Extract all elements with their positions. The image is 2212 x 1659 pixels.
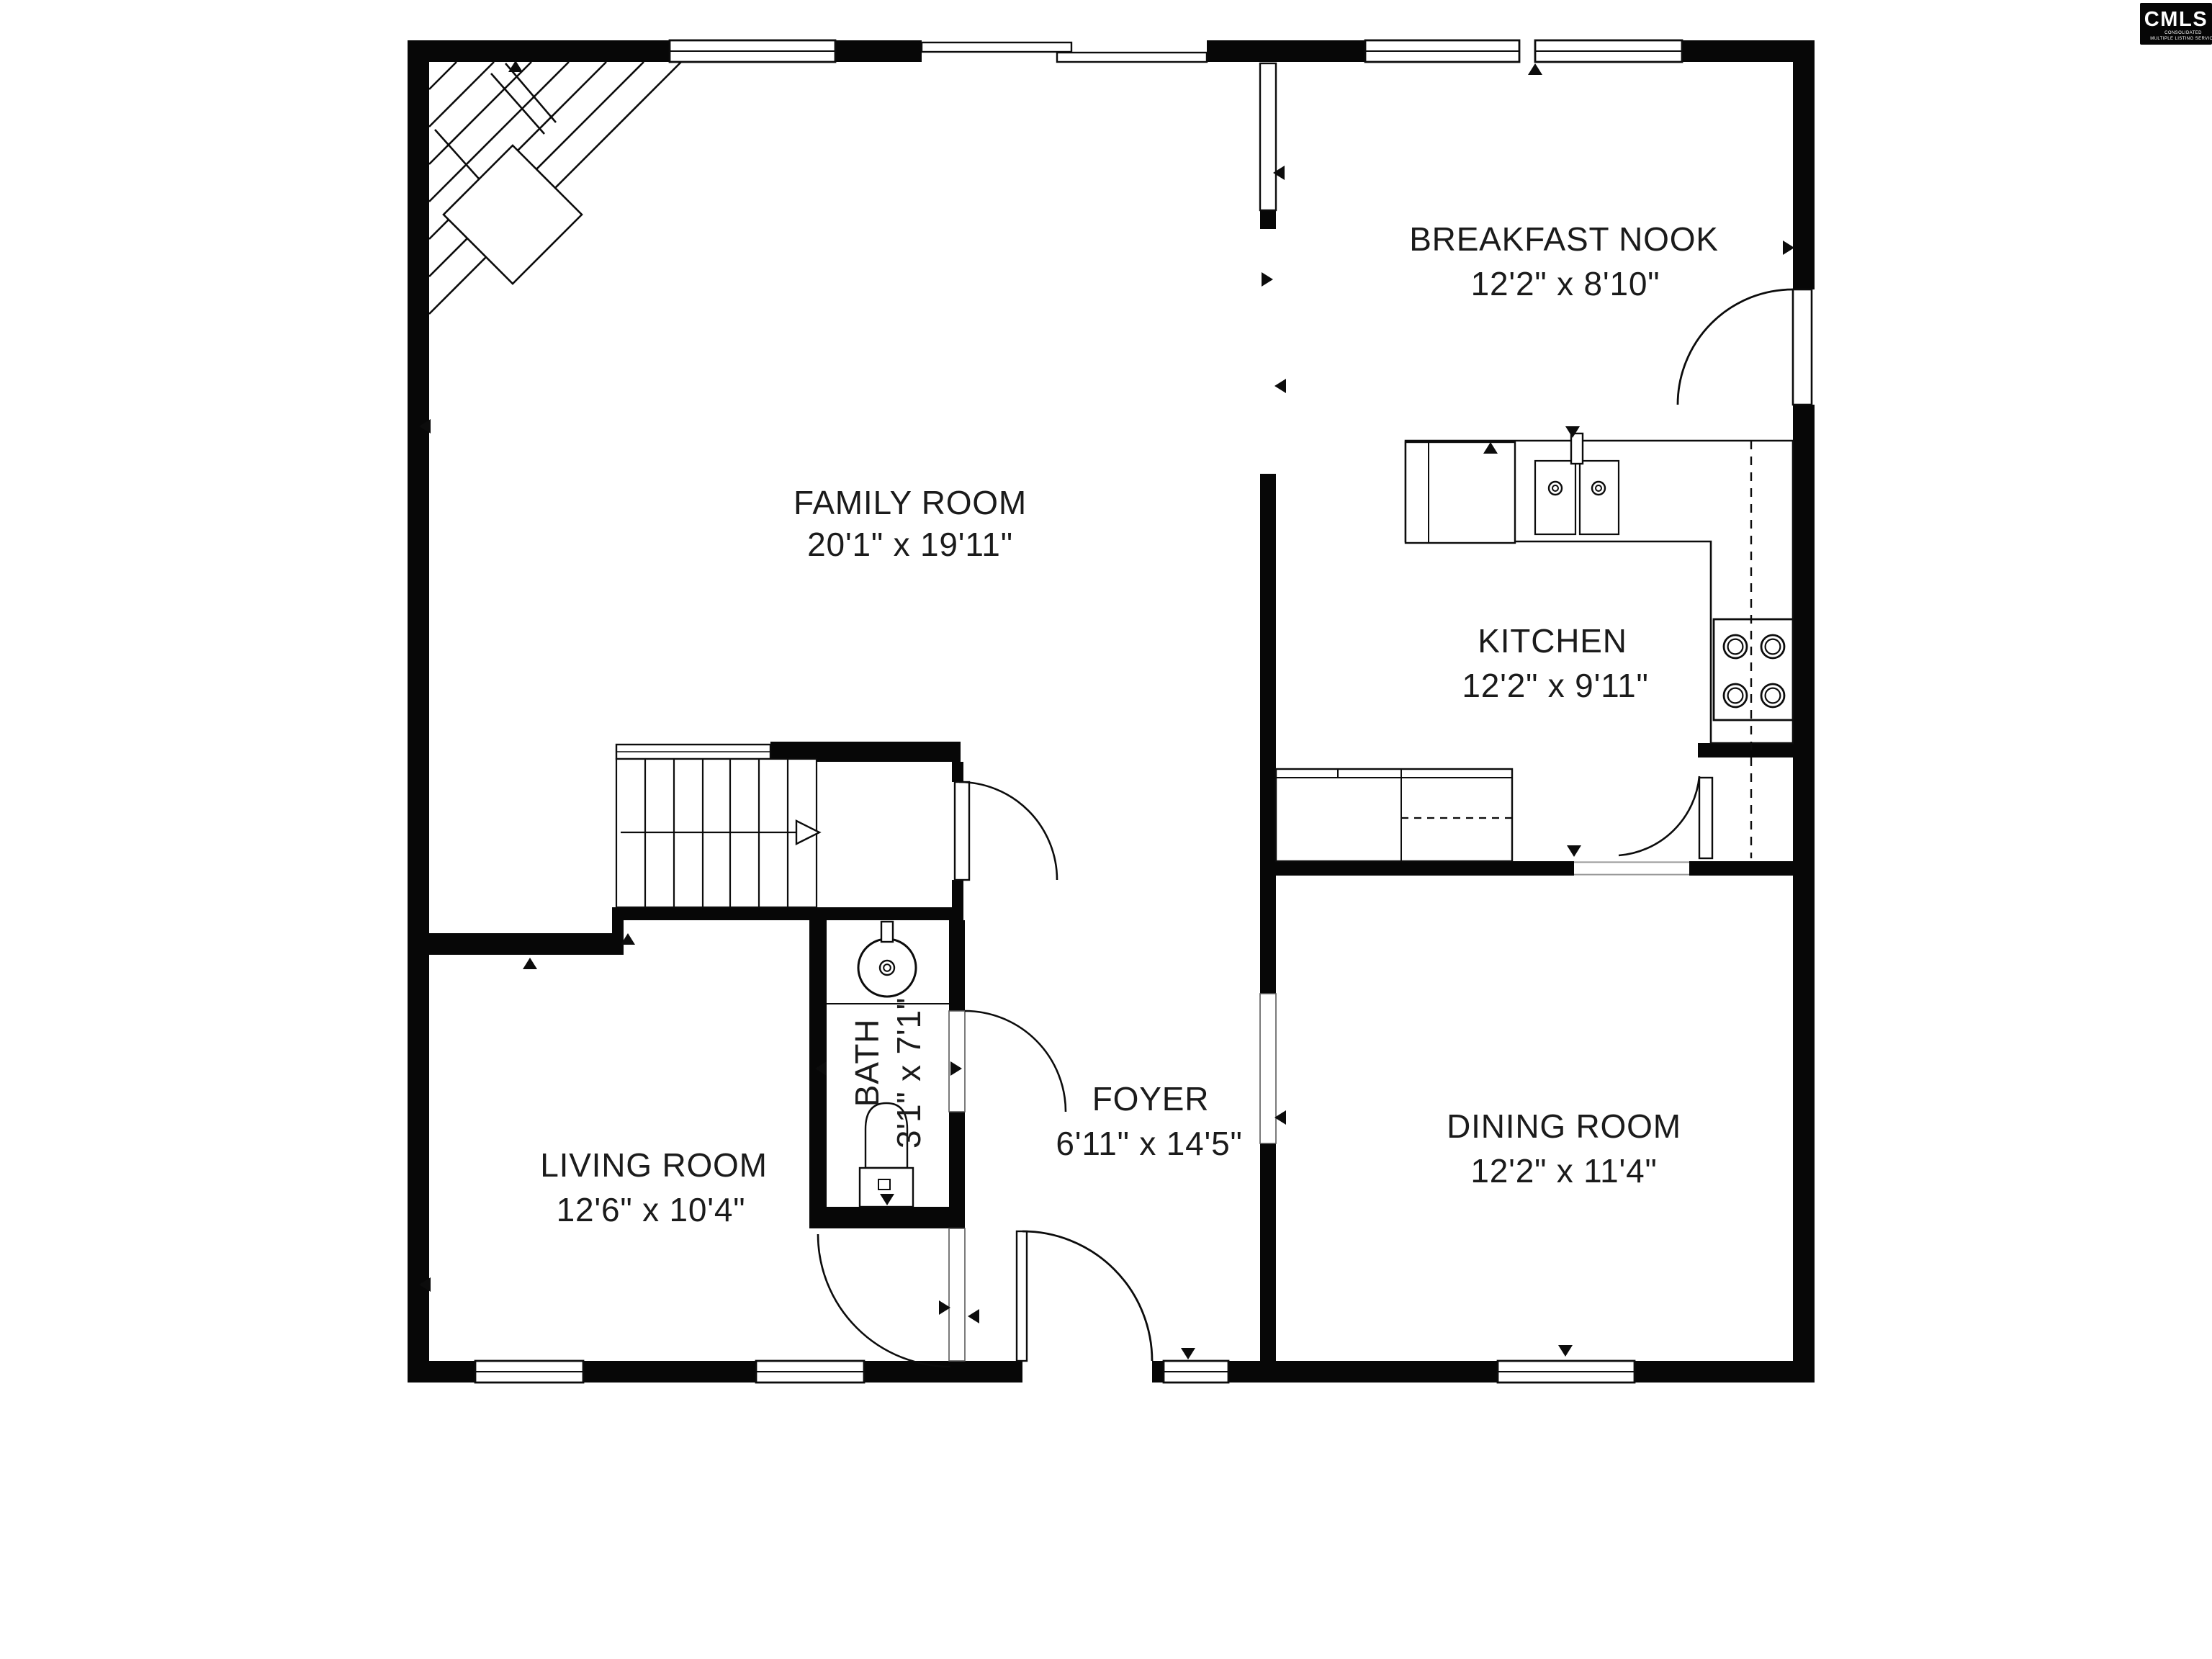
fireplace [429,62,681,314]
foyer-dining-opening [1260,994,1276,1143]
logo-subtitle-line2: MULTIPLE LISTING SERVICE [2150,37,2212,41]
bath-label: BATH [848,1019,886,1107]
interior-door [818,1234,950,1367]
family-room-dims: 20'1" x 19'11" [807,526,1013,563]
breakfast-nook-label: BREAKFAST NOOK [1409,220,1719,258]
sliding-door [922,42,1207,62]
logo-name: CMLS [2144,8,2208,31]
exterior-door [1678,289,1812,405]
kitchen-label: KITCHEN [1478,622,1627,660]
pantry-door [1619,776,1712,858]
window [1365,40,1682,62]
living-room-label: LIVING ROOM [540,1146,768,1184]
window [756,1361,864,1382]
direction-marker-icon [508,60,523,72]
interior-window [1260,63,1276,210]
cmls-logo: CMLS CONSOLIDATED MULTIPLE LISTING SERVI… [2140,3,2212,45]
kitchen-dining-opening [1574,862,1689,874]
window [1498,1361,1635,1382]
direction-marker-icon [1558,1345,1573,1357]
foyer-label: FOYER [1092,1080,1209,1118]
dining-room-dims: 12'2" x 11'4" [1470,1152,1657,1190]
staircase [616,745,819,907]
dining-room-label: DINING ROOM [1447,1107,1681,1145]
living-foyer-opening [949,1228,965,1361]
direction-marker-icon [1274,379,1286,393]
direction-marker-icon [1181,1348,1195,1359]
floor-plan: FAMILY ROOM 20'1" x 19'11" BREAKFAST NOO… [0,0,2212,1659]
bath-fixtures [827,922,949,1207]
direction-marker-icon [1262,272,1273,287]
logo-subtitle-line1: CONSOLIDATED [2164,31,2202,35]
living-room-dims: 12'6" x 10'4" [557,1191,746,1228]
direction-marker-icon [1528,63,1542,75]
bath-dims: 3'1" x 7'1" [890,997,927,1148]
foyer-dims: 6'11" x 14'5" [1056,1125,1242,1162]
refrigerator [1406,442,1515,543]
kitchen-dims: 12'2" x 9'11" [1462,667,1648,704]
closet-door [955,782,1057,880]
window [670,40,835,62]
room-labels: FAMILY ROOM 20'1" x 19'11" BREAKFAST NOO… [540,220,1719,1228]
window [475,1361,583,1382]
breakfast-nook-dims: 12'2" x 8'10" [1471,265,1660,302]
faucet [1571,433,1583,464]
direction-marker-icon [1567,845,1581,857]
direction-marker-icon [1783,240,1794,255]
bath-sink [827,922,949,1004]
direction-marker-icon [968,1309,979,1323]
bath-door [949,1011,1066,1112]
kitchen-lower-counter [1276,769,1512,861]
front-door [1017,1231,1152,1361]
direction-marker-icon [523,958,537,969]
family-room-label: FAMILY ROOM [793,484,1027,521]
stove [1714,619,1793,720]
window [1164,1361,1228,1382]
